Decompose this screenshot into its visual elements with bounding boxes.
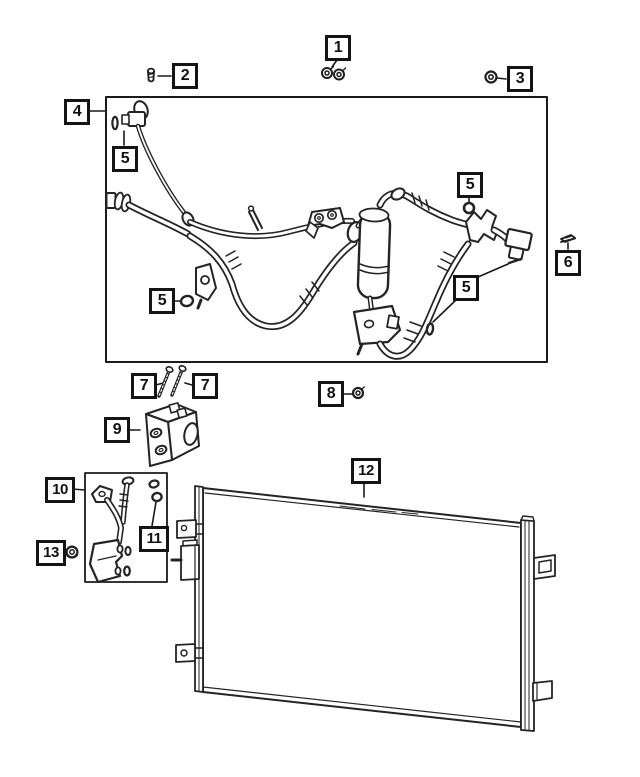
callout-12[interactable]: 12: [351, 458, 381, 484]
muffler-assembly: [346, 208, 391, 314]
o-ring-icon: [152, 492, 162, 501]
callout-10[interactable]: 10: [45, 477, 75, 503]
callout-5a[interactable]: 5: [112, 146, 138, 172]
hose-clamp: [249, 206, 262, 230]
stud-bolt-icon: [159, 366, 174, 396]
pipe-bracket: [306, 208, 344, 238]
leader-line: [152, 502, 156, 526]
junction-block: [354, 306, 400, 354]
nut-icon: [67, 547, 78, 558]
bolt-icon: [148, 69, 154, 82]
hose-assembly-drawing: [107, 99, 533, 356]
callout-9[interactable]: 9: [104, 417, 130, 443]
condenser-drawing: [172, 486, 555, 731]
callout-2[interactable]: 2: [172, 63, 198, 89]
valve-cap-icon: [561, 235, 575, 242]
o-ring-icon: [149, 480, 160, 489]
callout-5b[interactable]: 5: [457, 172, 483, 198]
o-ring-icon: [112, 117, 117, 129]
nut-icon: [322, 67, 334, 79]
callout-11[interactable]: 11: [139, 526, 169, 552]
condenser-bracket: [534, 555, 555, 579]
condenser-bracket: [533, 681, 552, 701]
hose-fitting: [122, 99, 150, 126]
parts-diagram-page: 1 2 3 4 5 5 5 5 6 7 7 8 9 10 11 12 13: [0, 0, 640, 777]
o-ring-icon: [125, 547, 130, 555]
callout-5d[interactable]: 5: [453, 275, 479, 301]
callout-7a[interactable]: 7: [131, 373, 157, 399]
hose-connector: [503, 229, 532, 261]
o-ring-icon: [180, 295, 194, 308]
callout-7b[interactable]: 7: [192, 373, 218, 399]
callout-1[interactable]: 1: [325, 35, 351, 61]
o-ring-icon: [124, 567, 130, 576]
ferrule: [389, 186, 406, 202]
callout-5c[interactable]: 5: [149, 288, 175, 314]
leader-line: [478, 264, 508, 277]
callout-3[interactable]: 3: [507, 66, 533, 92]
callout-13[interactable]: 13: [36, 540, 66, 566]
hose-ribs: [404, 252, 454, 342]
stud-bolt-icon: [172, 365, 187, 395]
callout-4[interactable]: 4: [64, 99, 90, 125]
o-ring-icon: [464, 203, 474, 213]
leader-line: [497, 78, 506, 79]
mounting-bracket: [196, 264, 216, 308]
nut-icon: [334, 68, 346, 80]
leader-line: [332, 60, 337, 67]
condenser-bracket: [172, 540, 199, 580]
washer-icon: [486, 72, 497, 83]
nut-icon: [353, 387, 365, 398]
fork-clamp: [466, 210, 498, 242]
leader-line: [185, 383, 192, 385]
o-ring-icon: [426, 323, 433, 335]
callout-6[interactable]: 6: [555, 250, 581, 276]
condenser-core: [203, 488, 521, 727]
callout-8[interactable]: 8: [318, 381, 344, 407]
expansion-valve-drawing: [146, 403, 200, 466]
